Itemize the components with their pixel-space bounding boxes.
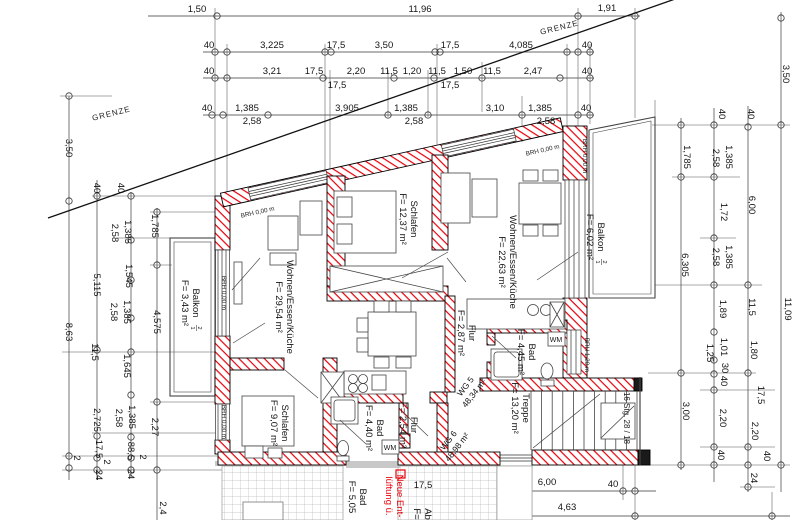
chair [396, 301, 411, 312]
floor-plan-canvas: GRENZE GRENZE [0, 0, 809, 520]
svg-text:F= 5,05: F= 5,05 [346, 481, 357, 513]
dim-label: 40 [718, 376, 729, 387]
dim-label: 88,5 [125, 442, 136, 461]
dim-label: 11,5 [428, 66, 446, 77]
chair [374, 301, 389, 312]
dimension-labels-left: 3,50 8,63 2 40 5,115 11,5 2,725 17,5 2 2… [63, 139, 168, 515]
chair [543, 170, 558, 181]
dim-label: 24 [748, 473, 759, 484]
room-label-abstell-cut: Ab F= [411, 508, 433, 520]
svg-text:Schlafen: Schlafen [279, 405, 290, 442]
pillow [337, 224, 352, 244]
dim-label: 11,5 [483, 66, 501, 77]
room-label-bad-cut: Bad F= 5,05 [346, 481, 368, 513]
dim-label: 2,58 [537, 116, 556, 127]
chair [523, 170, 538, 181]
dim-label: 40 [581, 103, 592, 114]
svg-text:Wohnen/Essen/Küche: Wohnen/Essen/Küche [284, 260, 295, 354]
dim-label: 11,5 [746, 298, 757, 316]
room-label-balkon-right: Balkon 2 1 F= 6,02 m² [584, 214, 607, 265]
sill-height-label: BRH 1,20 m [583, 338, 590, 372]
room-label-wohnen-left: Wohnen/Essen/Küche F= 29,54 m² [273, 260, 295, 354]
wall-segment [215, 336, 230, 404]
chair [523, 225, 538, 236]
dim-label: 40 [204, 66, 215, 77]
dining-table [519, 183, 561, 224]
dim-label: 2,58 [109, 224, 120, 243]
dim-label: 40 [582, 66, 593, 77]
dim-label: 4,575 [151, 310, 162, 334]
chair [357, 318, 368, 332]
sink [349, 375, 358, 384]
dim-label: 3,50 [375, 40, 394, 51]
svg-text:Wohnen/Essen/Küche: Wohnen/Essen/Küche [507, 215, 518, 309]
dim-label: 17,5 [441, 80, 460, 91]
dim-label: 3,00 [680, 402, 691, 421]
dim-label: 1,385 [723, 245, 734, 269]
room-label-wohnen-right: Wohnen/Essen/Küche F= 22,63 m² [496, 215, 518, 309]
chair [357, 338, 368, 352]
dim-label: 2,58 [113, 409, 124, 428]
room-label-schlafen-top: Schlafen F= 12,37 m² [397, 193, 419, 244]
wall-segment [430, 392, 447, 403]
svg-text:F= 2,87 m²: F= 2,87 m² [455, 310, 466, 356]
wall-segment [445, 296, 455, 392]
wall-segment [230, 358, 284, 370]
wall-end-cap [634, 378, 642, 391]
dim-label: 1,385 [235, 103, 259, 114]
svg-text:F= 13,20 m²: F= 13,20 m² [509, 382, 520, 433]
sofa [441, 173, 470, 223]
dim-label: 2 [137, 454, 148, 459]
sofa [472, 179, 497, 217]
sink [359, 375, 368, 384]
dim-label: 3,50 [780, 65, 791, 84]
dim-label: 6,00 [746, 196, 757, 215]
dim-label: 11,5 [89, 343, 100, 361]
kitchen-counter [344, 371, 406, 394]
dim-label: 6,00 [538, 477, 557, 488]
svg-text:1: 1 [189, 326, 195, 329]
dim-label: 2,58 [243, 116, 262, 127]
dim-label: 1,385 [723, 145, 734, 169]
dim-label: 1,72 [718, 203, 729, 222]
dim-label: 2,27 [149, 418, 160, 437]
svg-text:Balkon: Balkon [190, 288, 201, 317]
dim-label: 11,09 [782, 297, 793, 320]
dim-label: 1,91 [598, 3, 617, 14]
dim-label: 1,385 [528, 103, 552, 114]
svg-text:F= 29,54 m²: F= 29,54 m² [273, 281, 284, 332]
svg-text:F= 2,54 m²: F= 2,54 m² [397, 402, 408, 448]
svg-text:Flur: Flur [466, 325, 477, 341]
dim-label: 3,225 [260, 40, 284, 51]
stair-guide-line [533, 394, 634, 448]
wall-segment [487, 333, 495, 345]
room-label-schlafen-bottom: Schlafen F= 9,07 m² [268, 400, 290, 446]
dim-label: 2,58 [710, 248, 721, 267]
chair [396, 357, 411, 368]
dim-label: 2 [71, 455, 82, 460]
shower [331, 397, 358, 424]
svg-text:Bad: Bad [374, 420, 385, 437]
dim-label: 1,385 [122, 220, 133, 244]
dim-label: 6,305 [679, 253, 690, 277]
dim-label: 3,21 [263, 66, 282, 77]
dim-label: 40 [91, 183, 102, 194]
dim-label: 3,10 [486, 103, 505, 114]
dim-label: 17,5 [93, 440, 104, 459]
ventilation-note: Neue Ent- lüftung ü. [383, 475, 405, 518]
dim-label: 2,58 [710, 149, 721, 168]
dim-label: 17,5 [441, 40, 460, 51]
dim-label: 2,20 [347, 66, 366, 77]
stair-count-label: 16 Stg. 28 / 18 [622, 392, 631, 445]
sink [349, 384, 358, 393]
terrace-tiles [215, 461, 532, 520]
floor-plan-drawing: GRENZE GRENZE [0, 0, 809, 520]
toilet [337, 441, 349, 462]
dining-table [368, 312, 416, 356]
dim-label: 1,785 [681, 145, 692, 169]
dim-label: 17,5 [414, 480, 433, 491]
svg-text:F= 3,43 m²: F= 3,43 m² [179, 280, 190, 326]
sill-height-label: BRH 0,00 m [220, 405, 227, 439]
dim-label: 40 [745, 109, 756, 120]
dim-label: 40 [582, 40, 593, 51]
wall-segment [532, 450, 638, 465]
svg-text:F= 6,02 m²: F= 6,02 m² [584, 214, 595, 260]
svg-text:Balkon: Balkon [595, 222, 606, 251]
dimension-labels-right: 1,785 6,305 3,00 40 2,58 1,385 1,72 2,58… [679, 65, 793, 484]
wardrobe [330, 266, 443, 292]
svg-text:F= 12,37 m²: F= 12,37 m² [397, 193, 408, 244]
svg-text:2: 2 [196, 326, 202, 329]
dim-label: 8,63 [63, 323, 74, 342]
dim-label: 5,115 [91, 273, 102, 296]
dim-label: 2,725 [91, 408, 102, 432]
dim-label: 11,96 [408, 4, 431, 15]
dim-label: 1,385 [121, 300, 132, 324]
apartment-label-wg5: WG 5 48,34 m² [451, 370, 488, 409]
dim-label: 1,785 [149, 214, 160, 238]
dim-label: 1,385 [394, 103, 418, 114]
shelf [300, 201, 322, 235]
sink [528, 305, 539, 316]
sofa [268, 216, 298, 250]
dimension-labels-top: 1,50 11,96 1,91 40 3,225 17,5 3,50 17,5 … [188, 3, 617, 127]
dim-label: 40 [204, 40, 215, 51]
dim-label: 40 [608, 479, 619, 490]
dim-label: 2 [101, 459, 112, 464]
dim-label: 40 [716, 109, 727, 120]
stove [372, 375, 386, 390]
dim-label: 11,5 [380, 66, 398, 77]
dim-label: 40 [115, 183, 126, 194]
washing-machine-label: WM [384, 445, 397, 452]
dim-label: 1,50 [454, 66, 473, 77]
pillow [245, 446, 263, 458]
svg-text:Treppe: Treppe [520, 393, 531, 423]
dim-label: 30 [719, 363, 730, 374]
dim-label: 24 [125, 469, 136, 480]
room-label-balkon-left: Balkon 2 1 F= 3,43 m² [179, 280, 202, 331]
dim-label: 17,5 [755, 386, 766, 405]
dim-label: 40 [715, 450, 726, 461]
dim-label: 2,20 [717, 409, 728, 428]
dim-label: 1,545 [123, 264, 134, 288]
dim-label: 1,385 [126, 405, 137, 429]
toilet [541, 363, 554, 386]
sill-height-label: BRH 0,00 m [220, 276, 227, 310]
svg-text:F= 4,45 m²: F= 4,45 m² [515, 329, 526, 375]
dim-label: 40 [202, 103, 213, 114]
dim-label: 2,58 [108, 303, 119, 322]
svg-text:Bad: Bad [526, 344, 537, 361]
chair [543, 225, 558, 236]
dim-label: 1,89 [717, 300, 728, 319]
dim-label: 4,085 [509, 40, 533, 51]
pillow [337, 197, 352, 217]
svg-text:F= 22,63 m²: F= 22,63 m² [496, 236, 507, 287]
dim-label: 40 [761, 451, 772, 462]
room-label-bad-right: Bad F= 4,45 m² [515, 329, 537, 375]
washing-machine-label: WM [550, 337, 563, 344]
dim-label: 4,63 [558, 502, 577, 513]
dim-label: 3,50 [63, 139, 74, 158]
svg-text:lüftung ü.: lüftung ü. [383, 476, 394, 515]
svg-text:F= 4,40 m²: F= 4,40 m² [363, 405, 374, 451]
svg-text:Schlafen: Schlafen [408, 201, 419, 238]
dim-label: 24 [93, 470, 104, 481]
svg-text:F=: F= [411, 508, 422, 520]
dim-label: 1,01 [718, 338, 729, 357]
dim-label: 1,25 [704, 344, 715, 363]
dim-label: 1,50 [188, 4, 207, 15]
sill-height-label: BRH 0,00 m [525, 143, 560, 157]
dim-label: 17,5 [328, 80, 347, 91]
dim-label: 17,5 [327, 40, 346, 51]
svg-text:1: 1 [594, 260, 600, 263]
balcony-right [589, 117, 655, 298]
dim-label: 17,5 [305, 66, 324, 77]
dim-label: 2,20 [749, 422, 760, 441]
svg-text:Flur: Flur [408, 417, 419, 433]
dim-label: 1,645 [121, 354, 132, 378]
sink [359, 384, 368, 393]
dim-label: 1,20 [403, 66, 422, 77]
svg-text:Ab: Ab [422, 508, 433, 520]
nightstand [268, 448, 282, 458]
chair [374, 357, 389, 368]
svg-text:Neue Ent-: Neue Ent- [394, 475, 405, 518]
dim-label: 2,4 [157, 501, 168, 514]
sill-height-label: BRH 0,00 m [581, 139, 588, 173]
dim-label: 3,905 [335, 103, 359, 114]
svg-text:2: 2 [601, 260, 607, 263]
dim-label: 1,80 [748, 341, 759, 360]
svg-text:F= 9,07 m²: F= 9,07 m² [268, 400, 279, 446]
boundary-label: GRENZE [91, 104, 131, 122]
dim-label: 2,47 [524, 66, 543, 77]
svg-text:Bad: Bad [357, 489, 368, 506]
dim-label: 2,58 [405, 116, 424, 127]
room-label-flur-bottom: Flur F= 2,54 m² [397, 402, 419, 448]
